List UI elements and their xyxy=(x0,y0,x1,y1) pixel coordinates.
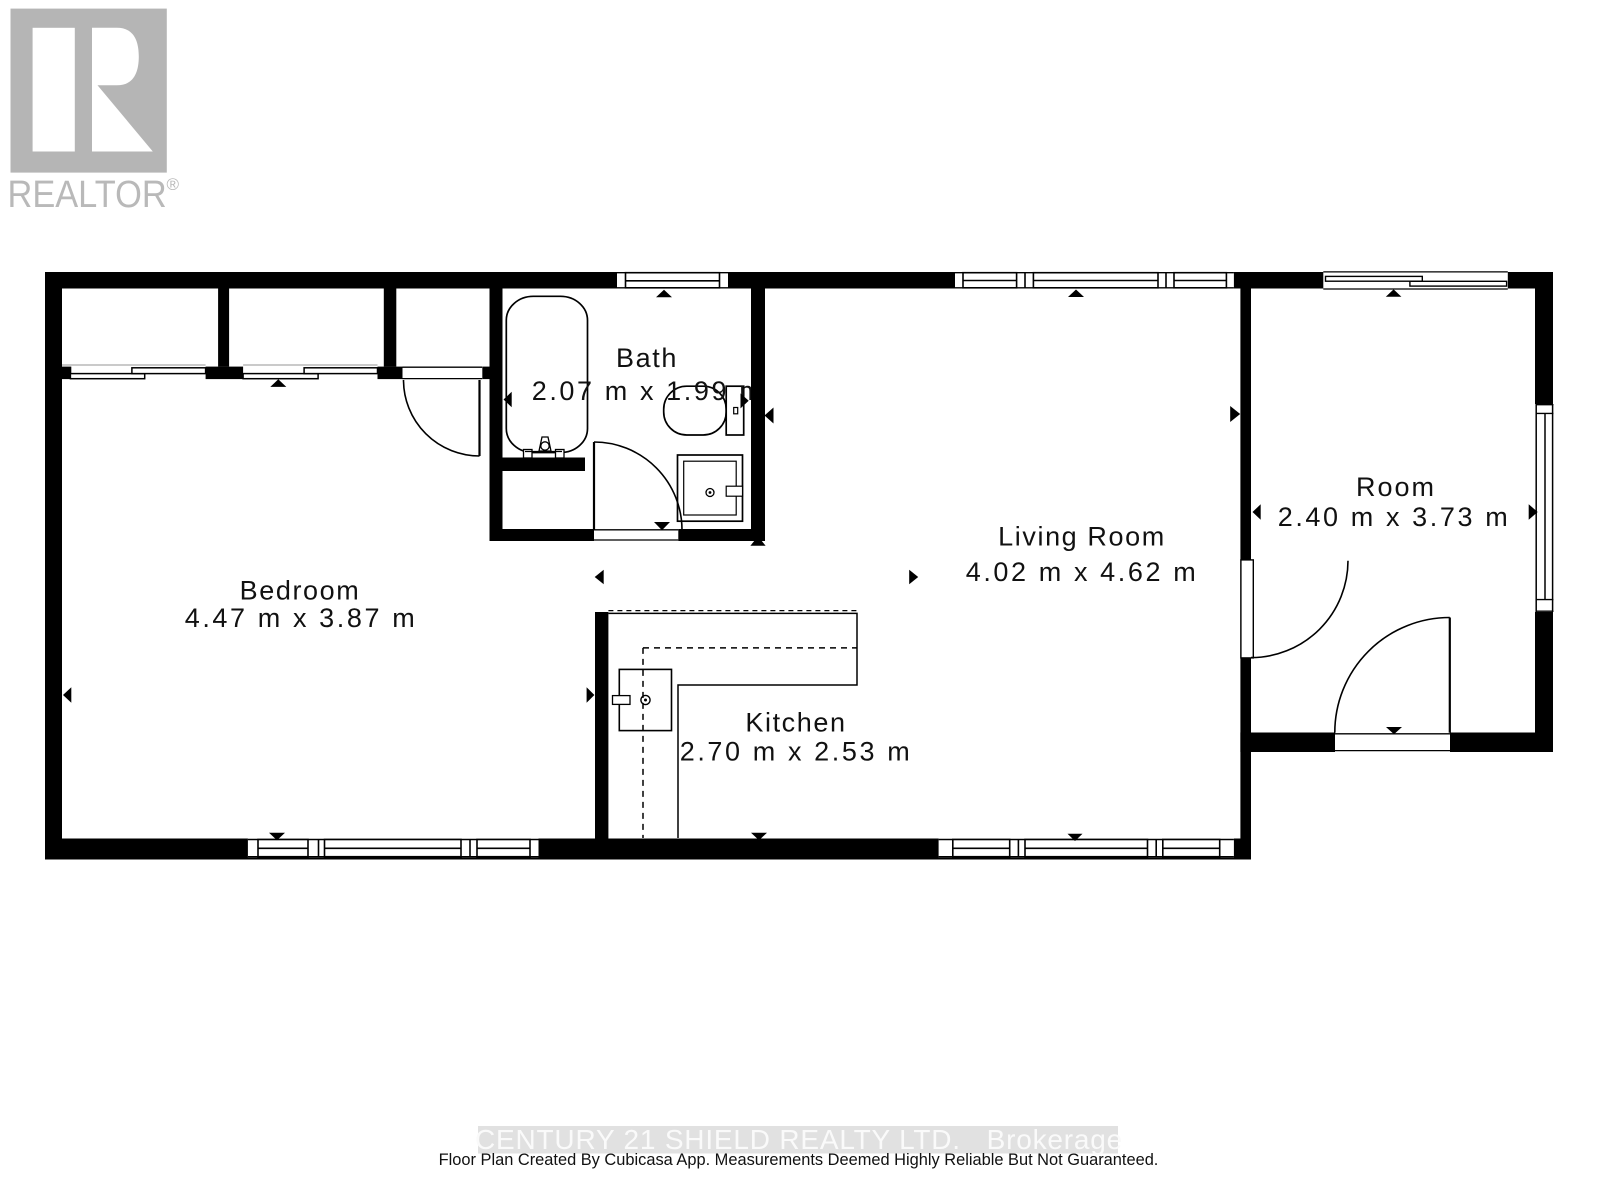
svg-text:Room: Room xyxy=(1356,472,1436,502)
svg-text:4.02 m x 4.62 m: 4.02 m x 4.62 m xyxy=(966,557,1199,587)
svg-text:4.47 m x 3.87 m: 4.47 m x 3.87 m xyxy=(185,603,418,633)
svg-text:2.40 m x 3.73 m: 2.40 m x 3.73 m xyxy=(1278,502,1511,532)
svg-text:2.07 m x 1.99 m: 2.07 m x 1.99 m xyxy=(532,376,765,406)
svg-text:Floor Plan Created By Cubicasa: Floor Plan Created By Cubicasa App. Meas… xyxy=(439,1151,1159,1169)
svg-text:2.70 m x 2.53 m: 2.70 m x 2.53 m xyxy=(680,737,913,767)
svg-text:Bath: Bath xyxy=(616,343,678,373)
svg-text:Bedroom: Bedroom xyxy=(240,576,361,606)
svg-text:Living Room: Living Room xyxy=(998,521,1166,551)
svg-text:REALTOR: REALTOR xyxy=(8,172,167,215)
svg-text:Kitchen: Kitchen xyxy=(745,707,846,737)
svg-text:®: ® xyxy=(167,175,180,194)
